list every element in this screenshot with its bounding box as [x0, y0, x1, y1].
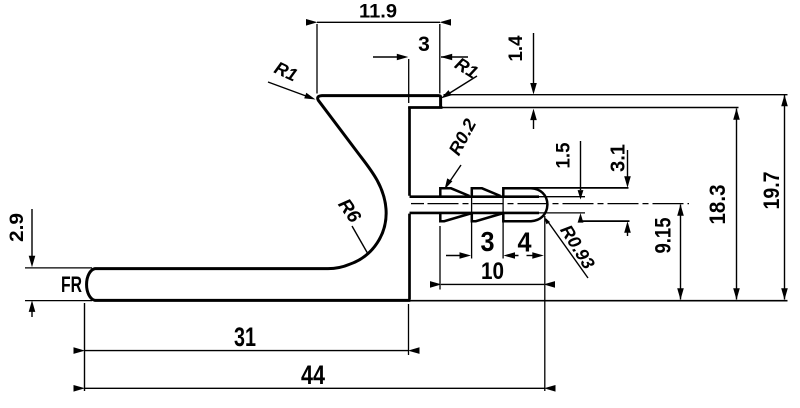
svg-text:19.7: 19.7 [759, 172, 784, 210]
svg-text:10: 10 [481, 258, 504, 285]
svg-text:4: 4 [518, 227, 532, 258]
svg-text:9.15: 9.15 [651, 218, 676, 254]
svg-text:3: 3 [481, 226, 495, 257]
svg-text:3: 3 [418, 33, 430, 56]
svg-text:2.9: 2.9 [7, 213, 28, 242]
svg-text:18.3: 18.3 [705, 185, 730, 225]
svg-text:44: 44 [301, 360, 325, 390]
svg-text:3.1: 3.1 [608, 144, 630, 172]
svg-text:11.9: 11.9 [359, 2, 397, 23]
svg-text:31: 31 [234, 322, 256, 352]
svg-text:1.5: 1.5 [554, 142, 575, 168]
svg-text:FR: FR [61, 272, 82, 297]
svg-text:1.4: 1.4 [506, 35, 527, 61]
